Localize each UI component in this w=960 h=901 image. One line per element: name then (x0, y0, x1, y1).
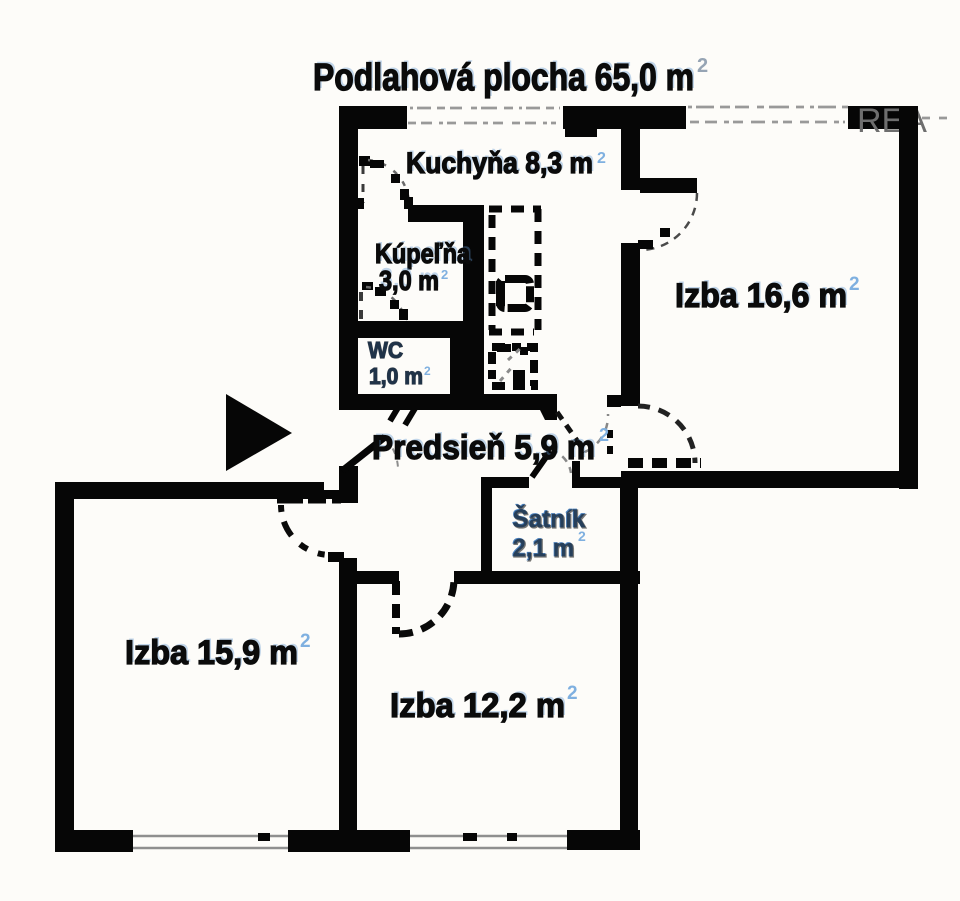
svg-text:WC: WC (368, 337, 403, 363)
svg-text:Šatník: Šatník (513, 504, 586, 534)
svg-text:2: 2 (697, 55, 708, 77)
svg-text:2: 2 (599, 425, 609, 445)
svg-text:Izba 15,9 m: Izba 15,9 m (125, 634, 298, 672)
svg-text:2: 2 (597, 150, 606, 167)
svg-text:2: 2 (300, 631, 311, 652)
svg-text:2: 2 (567, 683, 578, 704)
svg-text:2: 2 (578, 528, 586, 544)
svg-text:1,0 m: 1,0 m (369, 363, 423, 389)
svg-text:Izba 16,6 m: Izba 16,6 m (675, 277, 847, 315)
svg-text:3,0 m: 3,0 m (379, 265, 439, 296)
svg-text:2,1 m: 2,1 m (513, 535, 575, 563)
svg-text:2: 2 (441, 267, 448, 282)
svg-text:2: 2 (849, 274, 860, 295)
svg-text:Kuchyňa 8,3 m: Kuchyňa 8,3 m (406, 147, 593, 180)
svg-text:2: 2 (424, 364, 431, 378)
svg-text:Izba 12,2 m: Izba 12,2 m (390, 687, 565, 725)
svg-text:Podlahová plocha 65,0 m: Podlahová plocha 65,0 m (313, 57, 694, 99)
svg-text:Predsieň 5,9 m: Predsieň 5,9 m (372, 429, 595, 467)
